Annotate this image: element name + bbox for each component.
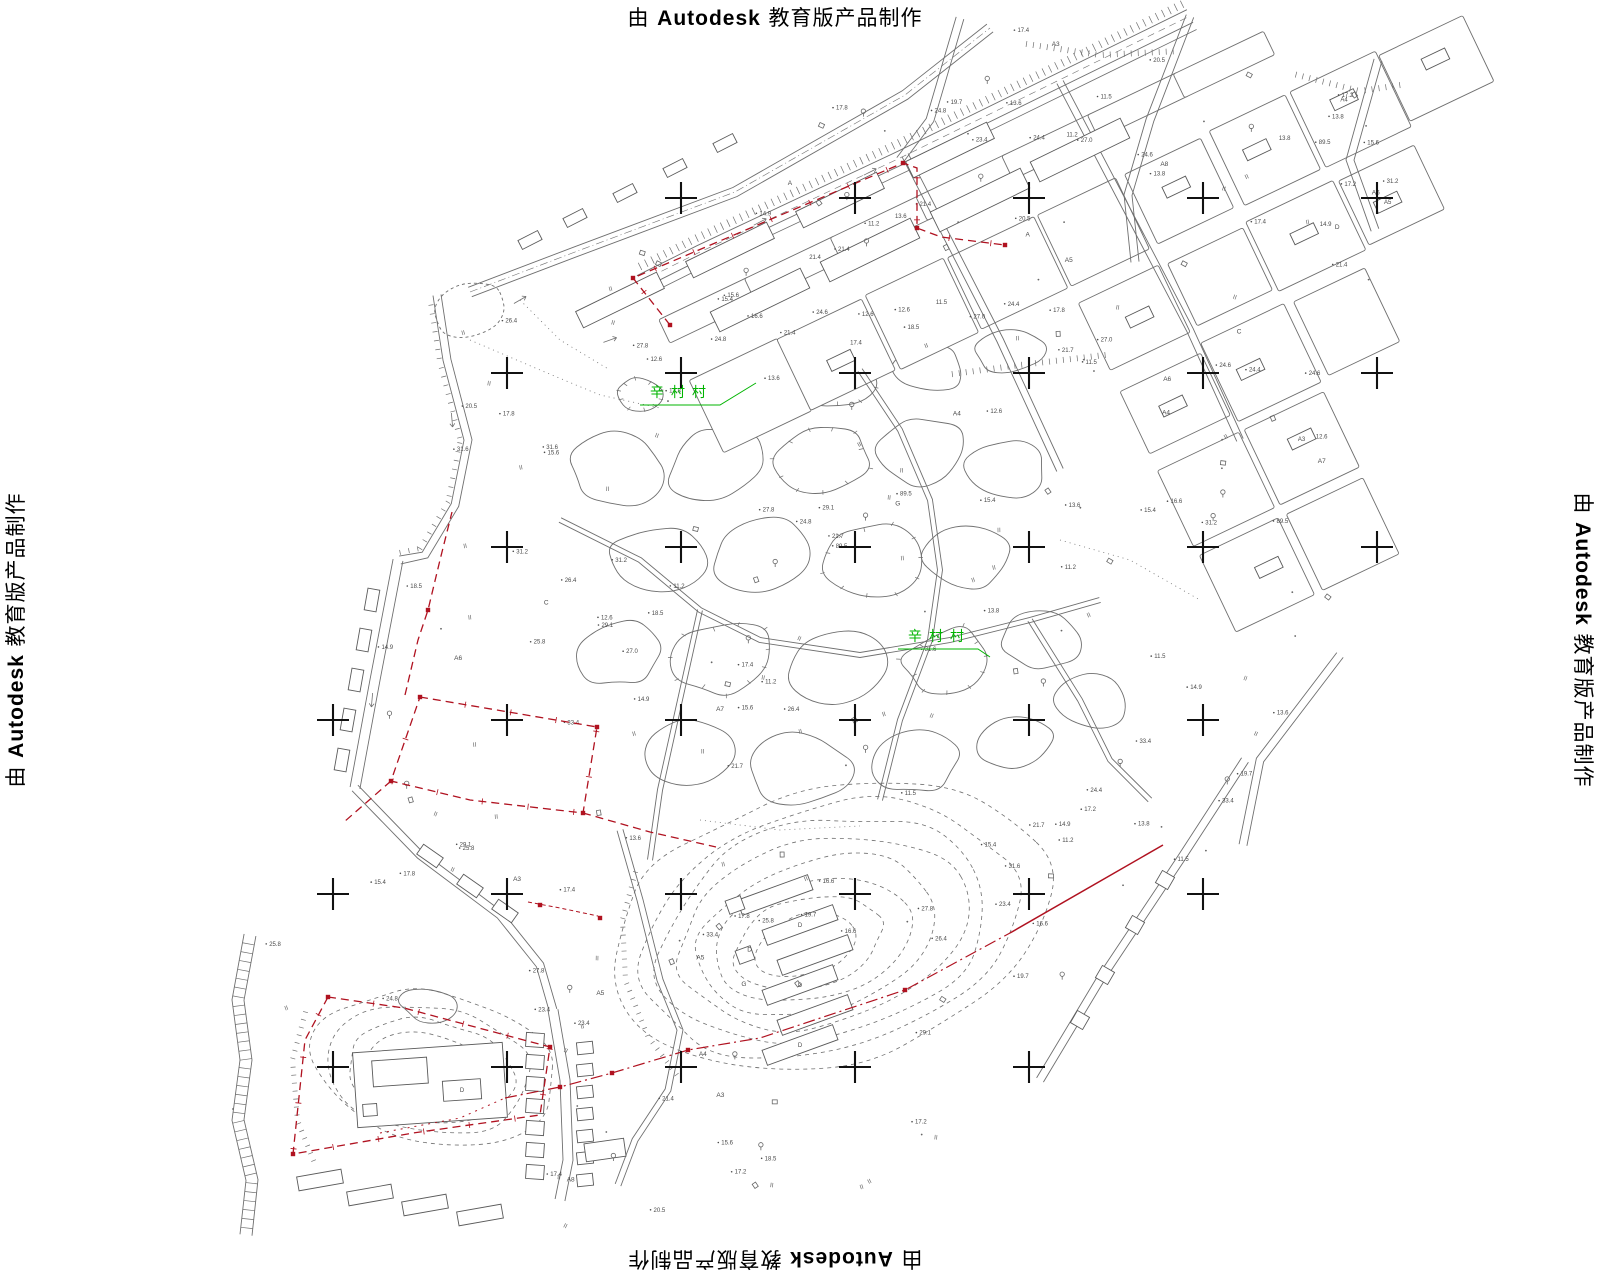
svg-text:II: II bbox=[468, 614, 473, 621]
svg-text:A3: A3 bbox=[513, 876, 521, 883]
svg-text:D: D bbox=[747, 947, 752, 954]
svg-text:D: D bbox=[798, 923, 803, 929]
svg-text:A8: A8 bbox=[567, 1177, 575, 1184]
svg-text:24.8: 24.8 bbox=[715, 337, 727, 343]
svg-text:II: II bbox=[971, 577, 977, 585]
svg-text:D: D bbox=[1335, 224, 1340, 231]
svg-text:12.6: 12.6 bbox=[1316, 434, 1328, 440]
svg-text:23.4: 23.4 bbox=[999, 902, 1011, 908]
svg-text:II: II bbox=[928, 712, 934, 720]
svg-text:12.6: 12.6 bbox=[898, 308, 910, 314]
svg-text:33.4: 33.4 bbox=[706, 932, 718, 938]
svg-text:11.2: 11.2 bbox=[1065, 565, 1077, 571]
svg-text:II: II bbox=[798, 728, 803, 736]
svg-text:17.4: 17.4 bbox=[741, 663, 753, 669]
svg-text:II: II bbox=[997, 527, 1001, 534]
svg-text:23.4: 23.4 bbox=[976, 138, 988, 144]
svg-text:19.7: 19.7 bbox=[1017, 974, 1029, 980]
svg-text:15.6: 15.6 bbox=[548, 450, 560, 456]
svg-text:17.8: 17.8 bbox=[836, 106, 848, 112]
svg-text:21.7: 21.7 bbox=[1062, 348, 1074, 354]
svg-text:89.5: 89.5 bbox=[1277, 519, 1289, 525]
svg-text:II: II bbox=[595, 955, 599, 962]
svg-text:29.1: 29.1 bbox=[822, 506, 834, 512]
svg-text:13.6: 13.6 bbox=[895, 214, 907, 220]
svg-text:II: II bbox=[992, 564, 997, 572]
svg-text:II: II bbox=[432, 811, 438, 819]
topographic-survey-map: 21.417.413.611.511.2A312.613.814.9A4A5 D… bbox=[0, 0, 1600, 1280]
svg-text:II: II bbox=[934, 1134, 939, 1141]
svg-text:18.5: 18.5 bbox=[765, 1156, 777, 1162]
svg-text:13.6: 13.6 bbox=[768, 376, 780, 382]
svg-text:17.2: 17.2 bbox=[1344, 182, 1356, 188]
svg-text:21.4: 21.4 bbox=[1336, 262, 1348, 268]
svg-text:21.4: 21.4 bbox=[784, 331, 796, 337]
svg-text:A5: A5 bbox=[1384, 200, 1392, 206]
svg-text:A5: A5 bbox=[696, 955, 704, 962]
svg-text:15.6: 15.6 bbox=[1367, 140, 1379, 146]
svg-text:II: II bbox=[721, 861, 726, 869]
svg-text:17.2: 17.2 bbox=[1342, 93, 1354, 99]
svg-text:II: II bbox=[887, 494, 892, 501]
svg-text:29.1: 29.1 bbox=[919, 1031, 931, 1037]
svg-text:31.2: 31.2 bbox=[516, 549, 528, 555]
svg-text:12.6: 12.6 bbox=[601, 615, 613, 621]
svg-text:11.2: 11.2 bbox=[1066, 132, 1078, 138]
svg-text:D: D bbox=[460, 1088, 465, 1094]
svg-text:21.4: 21.4 bbox=[662, 1096, 674, 1102]
svg-text:C: C bbox=[1237, 328, 1242, 335]
svg-text:17.2: 17.2 bbox=[915, 1120, 927, 1126]
svg-text:25.8: 25.8 bbox=[762, 919, 774, 925]
svg-text:A3: A3 bbox=[1298, 437, 1306, 443]
svg-text:17.4: 17.4 bbox=[850, 341, 862, 347]
svg-text:21.7: 21.7 bbox=[832, 534, 844, 540]
svg-text:A4: A4 bbox=[1162, 409, 1170, 416]
svg-text:17.8: 17.8 bbox=[503, 412, 515, 418]
svg-text:II: II bbox=[463, 543, 468, 551]
svg-text:18.5: 18.5 bbox=[908, 325, 920, 331]
svg-text:24.4: 24.4 bbox=[1008, 302, 1020, 308]
svg-text:17.8: 17.8 bbox=[403, 871, 415, 877]
svg-text:20.5: 20.5 bbox=[654, 1208, 666, 1214]
svg-text:21.4: 21.4 bbox=[838, 247, 850, 253]
svg-text:11.5: 11.5 bbox=[905, 791, 917, 797]
svg-text:16.6: 16.6 bbox=[845, 929, 857, 935]
svg-text:19.7: 19.7 bbox=[951, 100, 963, 106]
svg-text:II: II bbox=[610, 319, 616, 327]
cad-plot-canvas: 由 Autodesk 教育版产品制作 由 Autodesk 教育版产品制作 由 … bbox=[0, 0, 1600, 1280]
svg-text:11.5: 11.5 bbox=[1154, 654, 1166, 660]
svg-text:24.6: 24.6 bbox=[1309, 371, 1321, 377]
svg-text:24.6: 24.6 bbox=[1219, 363, 1231, 369]
svg-text:33.4: 33.4 bbox=[1222, 799, 1234, 805]
svg-text:17.4: 17.4 bbox=[1254, 220, 1266, 226]
svg-text:15.4: 15.4 bbox=[984, 498, 996, 504]
svg-text:31.6: 31.6 bbox=[457, 447, 469, 453]
svg-text:11.5: 11.5 bbox=[936, 300, 948, 306]
svg-text:13.8: 13.8 bbox=[988, 609, 1000, 615]
svg-text:31.6: 31.6 bbox=[925, 647, 937, 653]
svg-text:15.4: 15.4 bbox=[985, 843, 997, 849]
svg-text:17.2: 17.2 bbox=[735, 1170, 747, 1176]
svg-text:24.8: 24.8 bbox=[935, 108, 947, 114]
svg-text:II: II bbox=[519, 464, 524, 472]
svg-text:A: A bbox=[788, 180, 793, 187]
svg-text:31.2: 31.2 bbox=[1387, 179, 1399, 185]
svg-text:24.8: 24.8 bbox=[386, 996, 398, 1002]
svg-text:13.6: 13.6 bbox=[629, 836, 641, 842]
svg-text:27.8: 27.8 bbox=[763, 508, 775, 514]
svg-text:13.8: 13.8 bbox=[1332, 114, 1344, 120]
svg-text:II: II bbox=[562, 1047, 569, 1055]
svg-text:II: II bbox=[701, 748, 705, 755]
svg-text:II: II bbox=[449, 866, 455, 874]
svg-text:26.4: 26.4 bbox=[935, 936, 947, 942]
svg-text:II: II bbox=[769, 1182, 774, 1189]
svg-text:16.6: 16.6 bbox=[1170, 499, 1182, 505]
svg-text:33.4: 33.4 bbox=[1139, 739, 1151, 745]
svg-text:A5: A5 bbox=[1065, 257, 1073, 264]
svg-text:14.9: 14.9 bbox=[1059, 822, 1071, 828]
svg-text:21.4: 21.4 bbox=[809, 255, 821, 261]
village-name-label: 辛村村 bbox=[908, 628, 971, 644]
svg-text:11.2: 11.2 bbox=[765, 680, 777, 686]
svg-text:26.4: 26.4 bbox=[565, 578, 577, 584]
svg-text:21.7: 21.7 bbox=[731, 764, 743, 770]
svg-text:11.5: 11.5 bbox=[1086, 360, 1098, 366]
svg-text:11.5: 11.5 bbox=[1101, 94, 1113, 100]
svg-text:17.8: 17.8 bbox=[738, 914, 750, 920]
svg-text:A6: A6 bbox=[1372, 189, 1380, 196]
svg-text:31.6: 31.6 bbox=[1009, 864, 1021, 870]
svg-text:24.4: 24.4 bbox=[1249, 368, 1261, 374]
svg-text:15.6: 15.6 bbox=[727, 293, 739, 299]
svg-text:II: II bbox=[881, 711, 887, 719]
svg-text:20.5: 20.5 bbox=[1153, 58, 1165, 64]
svg-text:II: II bbox=[1242, 675, 1248, 683]
svg-text:21.7: 21.7 bbox=[1033, 823, 1045, 829]
svg-text:20.5: 20.5 bbox=[1019, 216, 1031, 222]
svg-text:19.7: 19.7 bbox=[805, 913, 817, 919]
svg-text:23.4: 23.4 bbox=[538, 1007, 550, 1013]
svg-text:14.9: 14.9 bbox=[381, 645, 393, 651]
svg-text:24.8: 24.8 bbox=[800, 519, 812, 525]
svg-text:II: II bbox=[796, 635, 802, 643]
svg-text:A7: A7 bbox=[716, 706, 724, 713]
svg-text:19.7: 19.7 bbox=[1241, 772, 1253, 778]
svg-text:13.6: 13.6 bbox=[1010, 101, 1022, 107]
svg-text:27.8: 27.8 bbox=[637, 343, 649, 349]
svg-text:II: II bbox=[900, 555, 905, 562]
svg-text:A3: A3 bbox=[1052, 41, 1060, 48]
svg-text:A6: A6 bbox=[1163, 376, 1171, 383]
svg-text:15.4: 15.4 bbox=[1144, 508, 1156, 514]
svg-text:14.9: 14.9 bbox=[759, 211, 771, 217]
svg-text:G: G bbox=[895, 501, 900, 508]
svg-text:15.6: 15.6 bbox=[721, 1140, 733, 1146]
svg-text:17.8: 17.8 bbox=[1053, 308, 1065, 314]
svg-text:12.6: 12.6 bbox=[990, 409, 1002, 415]
parcels-layer: 21.417.413.611.511.2A312.613.814.9A4A5 bbox=[398, 16, 1493, 1024]
svg-text:II: II bbox=[284, 1005, 290, 1013]
svg-text:20.5: 20.5 bbox=[465, 404, 477, 410]
svg-text:18.5: 18.5 bbox=[652, 611, 664, 617]
svg-text:27.8: 27.8 bbox=[921, 906, 933, 912]
svg-text:A: A bbox=[1025, 232, 1030, 239]
svg-text:27.8: 27.8 bbox=[533, 969, 545, 975]
svg-text:A4: A4 bbox=[953, 411, 961, 418]
svg-text:14.9: 14.9 bbox=[1190, 685, 1202, 691]
svg-text:C: C bbox=[544, 600, 549, 607]
svg-text:16.6: 16.6 bbox=[823, 879, 835, 885]
svg-text:II: II bbox=[494, 814, 498, 821]
svg-text:16.6: 16.6 bbox=[1036, 921, 1048, 927]
svg-text:15.4: 15.4 bbox=[374, 880, 386, 886]
svg-text:II: II bbox=[1253, 730, 1259, 738]
svg-text:27.0: 27.0 bbox=[973, 315, 985, 321]
svg-text:26.4: 26.4 bbox=[505, 319, 517, 325]
svg-text:26.4: 26.4 bbox=[788, 707, 800, 713]
svg-text:D: D bbox=[798, 1043, 803, 1049]
svg-text:13.8: 13.8 bbox=[1138, 822, 1150, 828]
svg-text:A5: A5 bbox=[596, 990, 604, 997]
svg-text:24.4: 24.4 bbox=[1090, 788, 1102, 794]
svg-text:25.8: 25.8 bbox=[269, 942, 281, 948]
svg-text:18.5: 18.5 bbox=[410, 584, 422, 590]
svg-text:II: II bbox=[654, 432, 660, 440]
svg-text:II: II bbox=[859, 1183, 865, 1191]
village-name-label: 辛村村 bbox=[650, 384, 713, 400]
svg-text:12.6: 12.6 bbox=[650, 357, 662, 363]
svg-text:14.9: 14.9 bbox=[638, 697, 650, 703]
svg-text:II: II bbox=[606, 486, 610, 493]
village-labels-layer: 辛村村辛村村 bbox=[640, 383, 990, 657]
svg-text:11.2: 11.2 bbox=[673, 584, 685, 590]
svg-text:24.6: 24.6 bbox=[816, 310, 828, 316]
svg-text:89.5: 89.5 bbox=[900, 492, 912, 498]
svg-text:17.4: 17.4 bbox=[1017, 28, 1029, 34]
svg-text:25.8: 25.8 bbox=[534, 640, 546, 646]
svg-text:A8: A8 bbox=[1160, 161, 1168, 168]
svg-text:31.2: 31.2 bbox=[1205, 520, 1217, 526]
svg-text:II: II bbox=[461, 329, 467, 337]
svg-text:27.0: 27.0 bbox=[1101, 338, 1113, 344]
svg-text:II: II bbox=[1086, 612, 1092, 620]
svg-text:II: II bbox=[562, 1222, 568, 1230]
svg-text:17.2: 17.2 bbox=[1084, 807, 1096, 813]
svg-text:27.0: 27.0 bbox=[1081, 138, 1093, 144]
svg-text:II: II bbox=[473, 742, 478, 749]
svg-text:24.4: 24.4 bbox=[1033, 136, 1045, 142]
svg-text:II: II bbox=[487, 380, 492, 388]
svg-text:A7: A7 bbox=[1318, 458, 1326, 465]
svg-text:13.6: 13.6 bbox=[1069, 503, 1081, 509]
svg-text:II: II bbox=[1015, 335, 1019, 342]
svg-text:29.1: 29.1 bbox=[601, 623, 613, 629]
svg-text:11.2: 11.2 bbox=[868, 221, 880, 227]
svg-text:G: G bbox=[741, 981, 746, 988]
svg-text:13.8: 13.8 bbox=[1153, 172, 1165, 178]
svg-text:31.2: 31.2 bbox=[615, 558, 627, 564]
svg-text:11.5: 11.5 bbox=[1178, 857, 1190, 863]
svg-text:II: II bbox=[867, 1178, 874, 1186]
svg-text:13.6: 13.6 bbox=[1277, 711, 1289, 717]
svg-text:17.4: 17.4 bbox=[550, 1172, 562, 1178]
svg-text:A3: A3 bbox=[716, 1092, 724, 1099]
svg-text:A4: A4 bbox=[699, 1051, 707, 1058]
svg-text:II: II bbox=[631, 730, 637, 738]
svg-text:29.1: 29.1 bbox=[460, 842, 472, 848]
svg-text:21.4: 21.4 bbox=[919, 202, 931, 208]
svg-text:15.6: 15.6 bbox=[742, 706, 754, 712]
svg-text:27.0: 27.0 bbox=[626, 649, 638, 655]
svg-text:31.6: 31.6 bbox=[546, 445, 558, 451]
svg-text:11.2: 11.2 bbox=[1062, 838, 1074, 844]
svg-text:II: II bbox=[608, 285, 614, 293]
svg-text:17.4: 17.4 bbox=[563, 888, 575, 894]
svg-text:13.8: 13.8 bbox=[1279, 136, 1291, 142]
svg-text:16.6: 16.6 bbox=[751, 314, 763, 320]
svg-text:A6: A6 bbox=[454, 655, 462, 662]
svg-text:89.5: 89.5 bbox=[1319, 140, 1331, 146]
svg-text:24.6: 24.6 bbox=[1141, 153, 1153, 159]
svg-text:12.6: 12.6 bbox=[862, 312, 874, 318]
svg-text:II: II bbox=[900, 467, 904, 474]
svg-text:14.9: 14.9 bbox=[1320, 222, 1332, 228]
